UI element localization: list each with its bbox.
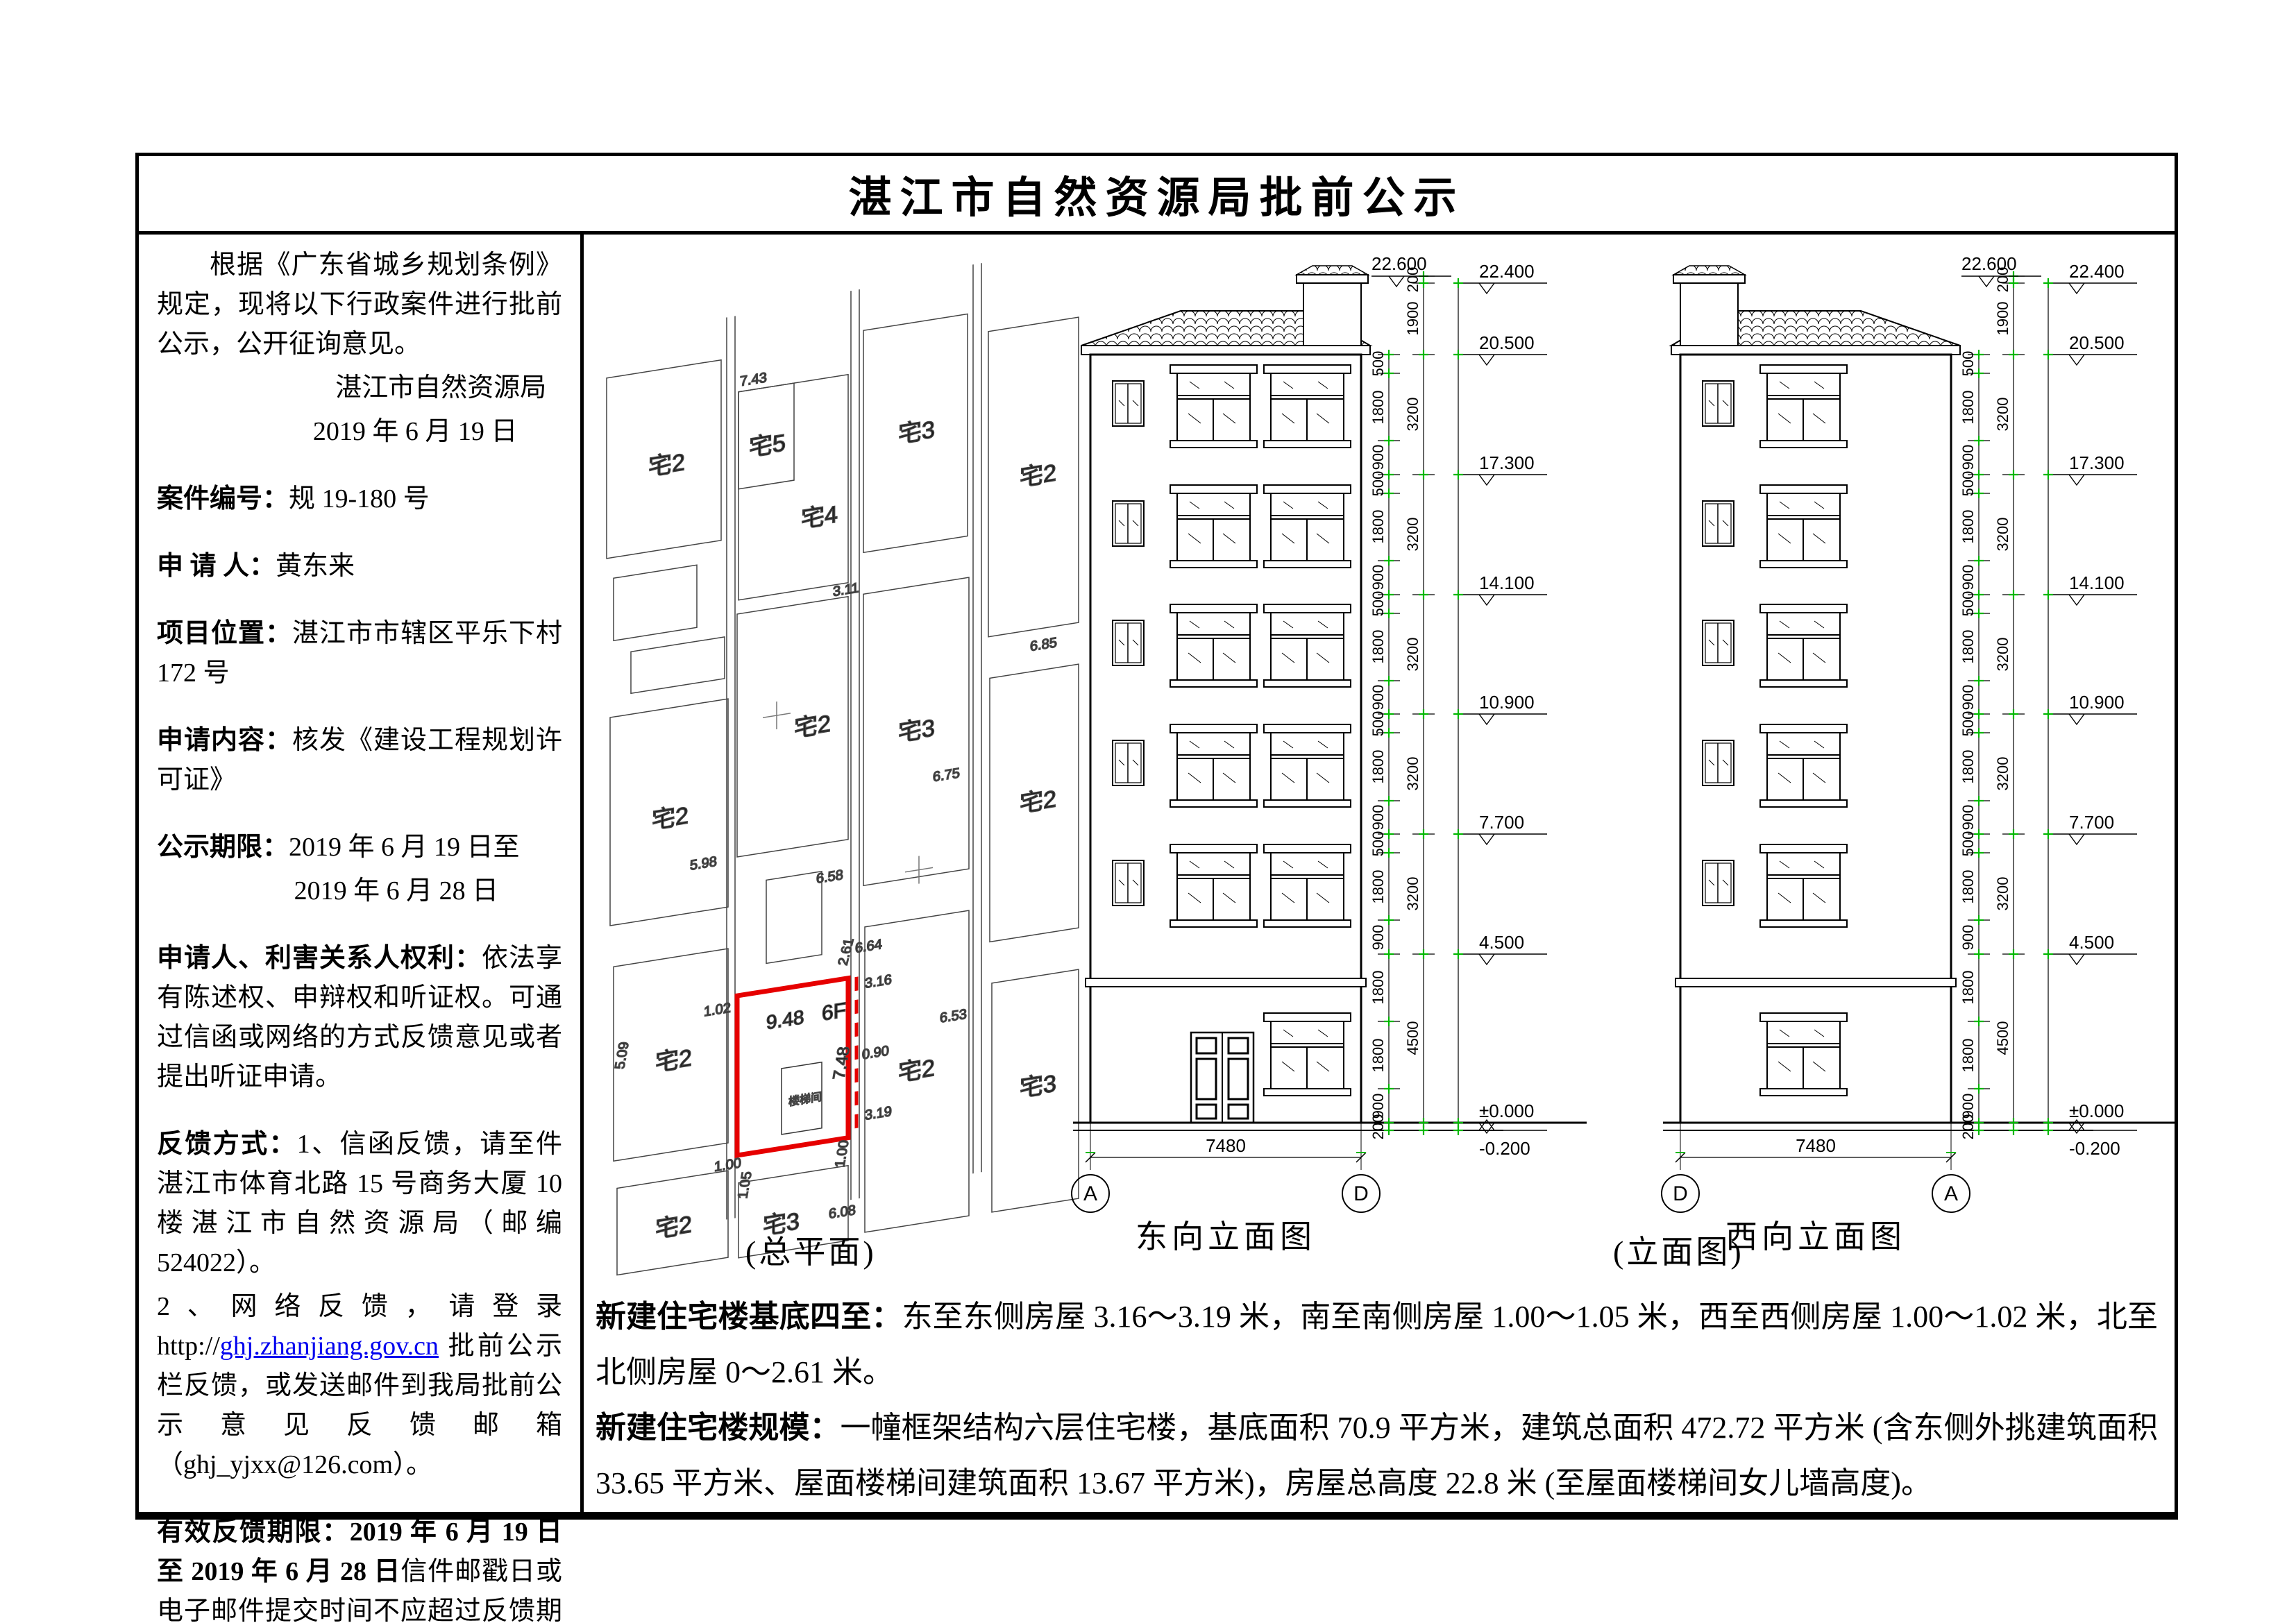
dim-text: 1800 — [1369, 630, 1387, 664]
red-subject-plot: 9.48 6F 楼梯间 7.48 — [737, 977, 856, 1155]
dim-text: 3200 — [1994, 638, 2011, 672]
field-period: 公示期限：2019 年 6 月 19 日至 — [157, 828, 562, 867]
elevations-caption: (立面图) — [1613, 1227, 1744, 1273]
rights-paragraph: 申请人、利害关系人权利：依法享有陈述权、申辩权和听证权。可通过信函或网络的方式反… — [157, 939, 562, 1097]
field-content: 申请内容：核发《建设工程规划许可证》 — [157, 721, 562, 800]
dim-text: 3200 — [1404, 757, 1421, 791]
east-elevation-drawing: 500 1800 900 500 1800 900 500 1800 900 5… — [1073, 255, 1601, 1296]
parcel-label: 宅2 — [652, 802, 689, 834]
dim-text: 3200 — [1994, 518, 2011, 552]
level-markers: 22.600 22.400 20.500 17.300 14.100 10.90… — [1961, 253, 2137, 1159]
dim-label: 1.00 — [832, 1140, 852, 1168]
level-text: 22.600 — [1961, 253, 2017, 274]
axis-letter: A — [1083, 1182, 1097, 1205]
dim-text: 900 — [1959, 805, 1977, 831]
dim-text: 900 — [1959, 445, 1977, 470]
survey-cross-icon — [905, 853, 933, 885]
window-large — [1760, 485, 1847, 568]
dim-text: 500 — [1959, 471, 1977, 497]
level-text: 17.300 — [2069, 452, 2125, 473]
stair-penthouse — [1680, 283, 1738, 346]
dim-text: 200 — [1959, 1114, 1977, 1140]
note-boundaries: 新建住宅楼基底四至：东至东侧房屋 3.16～3.19 米，南至南侧房屋 1.00… — [596, 1289, 2158, 1400]
site-plan-drawing: 宅2 宅2 宅2 宅2 宅5 宅4 宅2 — [593, 262, 1086, 1234]
dim-label: 5.98 — [690, 854, 717, 874]
elevation-title: 西向立面图 — [1725, 1219, 1906, 1255]
dim-text: 1800 — [1369, 1039, 1387, 1073]
dim-text: 1900 — [1404, 302, 1421, 336]
dim-label: 6.58 — [816, 867, 843, 887]
dim-text: 500 — [1369, 831, 1387, 857]
parcel-label: 宅3 — [898, 715, 935, 747]
eave-band — [1671, 346, 1960, 355]
dim-text: 1800 — [1959, 971, 1977, 1005]
penthouse-roof — [1297, 266, 1368, 275]
dim-text: 900 — [1369, 685, 1387, 711]
penthouse-eave — [1297, 275, 1368, 283]
dim-label: 3.16 — [865, 972, 892, 992]
dim-text: 500 — [1369, 711, 1387, 737]
parcel-label: 宅4 — [801, 501, 838, 533]
dim-text: 1800 — [1959, 391, 1977, 425]
entrance-door — [1191, 1033, 1253, 1123]
dim-text: 1800 — [1369, 510, 1387, 544]
red-plot-floors-label: 6F — [822, 999, 846, 1025]
intro-paragraph: 根据《广东省城乡规划条例》规定，现将以下行政案件进行批前公示，公开征询意见。 — [157, 246, 562, 364]
dim-text: 3200 — [1404, 877, 1421, 911]
window-large — [1760, 604, 1847, 687]
dim-label: 5.09 — [612, 1042, 632, 1069]
field-case-number: 案件编号：规 19-180 号 — [157, 479, 562, 519]
dim-text: 1800 — [1959, 630, 1977, 664]
dim-text: 1800 — [1959, 510, 1977, 544]
dimension-chain-outer: 200 1900 3200 3200 3200 3200 3200 4500 — [1404, 267, 1435, 1135]
window-small — [1113, 860, 1144, 906]
window-large — [1170, 844, 1257, 927]
dim-label: 2.61 — [836, 937, 857, 966]
level-text: -0.200 — [1479, 1138, 1530, 1159]
level-text: 22.400 — [1479, 261, 1535, 282]
span-dim: 7480 — [1796, 1135, 1836, 1156]
dim-text: 1900 — [1994, 302, 2011, 336]
dim-label: 1.00 — [714, 1155, 741, 1175]
parcel — [738, 375, 848, 600]
parcel-label: 宅2 — [655, 1045, 692, 1077]
span-dim: 7480 — [1206, 1135, 1246, 1156]
belt-course — [1086, 978, 1366, 987]
dim-text: 1800 — [1369, 750, 1387, 784]
dimension-chain-inner: 500 1800 900 500 1800 900 500 1800 900 5… — [1959, 350, 1990, 1139]
dim-text: 3200 — [1994, 757, 2011, 791]
page-title: 湛江市自然资源局批前公示 — [848, 162, 1464, 225]
dim-text: 900 — [1369, 925, 1387, 951]
level-text: 10.900 — [2069, 692, 2125, 713]
parcel-label: 宅2 — [794, 711, 831, 742]
dim-label: 1.05 — [735, 1171, 754, 1199]
dim-text: 4500 — [1404, 1021, 1421, 1055]
window-small — [1113, 620, 1144, 665]
level-text: 4.500 — [2069, 932, 2114, 953]
window-large — [1760, 365, 1847, 448]
outbuilding — [766, 872, 822, 964]
dim-label: 7.43 — [740, 370, 767, 389]
dim-text: 3200 — [1404, 398, 1421, 432]
dim-label: 3.11 — [833, 580, 859, 600]
window-small — [1703, 620, 1734, 665]
site-plan-caption: (总平面) — [745, 1227, 877, 1273]
dim-label: 6.53 — [940, 1007, 967, 1026]
dim-text: 1800 — [1369, 391, 1387, 425]
dim-text: 500 — [1959, 351, 1977, 377]
parcel-label: 宅2 — [1020, 459, 1056, 491]
dim-text: 4500 — [1994, 1021, 2011, 1055]
parcel-label: 宅2 — [898, 1055, 935, 1087]
dim-text: 1800 — [1369, 971, 1387, 1005]
window-small — [1113, 381, 1144, 426]
window-small — [1703, 860, 1734, 906]
window-large — [1264, 844, 1351, 927]
feedback-url-link[interactable]: ghj.zhanjiang.gov.cn — [220, 1332, 439, 1361]
parcel — [737, 597, 848, 857]
outbuilding — [614, 565, 697, 640]
dim-text: 900 — [1959, 925, 1977, 951]
dim-text: 900 — [1369, 445, 1387, 470]
dim-text: 900 — [1959, 565, 1977, 590]
axis-letter: D — [1673, 1182, 1688, 1205]
dim-text: 900 — [1369, 565, 1387, 590]
level-text: ±0.000 — [2069, 1101, 2124, 1121]
eave-band — [1081, 346, 1370, 355]
parcel-label: 宅5 — [749, 430, 786, 461]
level-text: 20.500 — [2069, 332, 2125, 353]
notice-sidebar: 根据《广东省城乡规划条例》规定，现将以下行政案件进行批前公示，公开征询意见。 湛… — [139, 235, 584, 1512]
dim-text: 3200 — [1404, 518, 1421, 552]
survey-cross-icon — [763, 699, 791, 731]
dim-text: 200 — [1369, 1114, 1387, 1140]
dim-text: 1800 — [1369, 870, 1387, 904]
drawing-area: 宅2 宅2 宅2 宅2 宅5 宅4 宅2 — [587, 235, 2175, 1512]
elevation-title: 东向立面图 — [1136, 1219, 1316, 1255]
dim-label: 3.19 — [865, 1104, 892, 1123]
dim-text: 3200 — [1404, 638, 1421, 672]
feedback-paragraph-1: 反馈方式：1、信函反馈，请至件湛江市体育北路 15 号商务大厦 10 楼湛江市自… — [157, 1125, 562, 1283]
field-applicant: 申 请 人：黄东来 — [157, 547, 562, 586]
dim-label: 0.90 — [862, 1043, 889, 1062]
level-markers: 22.600 22.400 20.500 17.300 14.100 10.90… — [1371, 253, 1547, 1159]
window-small — [1703, 501, 1734, 546]
window-large — [1264, 724, 1351, 807]
window-large — [1264, 1013, 1351, 1096]
field-period-line2: 2019 年 6 月 28 日 — [157, 872, 562, 911]
dim-label: 6.08 — [829, 1203, 856, 1222]
dim-text: 500 — [1369, 471, 1387, 497]
level-text: 10.900 — [1479, 692, 1535, 713]
title-bar: 湛江市自然资源局批前公示 — [139, 156, 2175, 235]
parcel-label: 宅2 — [648, 449, 685, 481]
dim-text: 500 — [1959, 831, 1977, 857]
agency-date: 2019 年 6 月 19 日 — [157, 412, 562, 452]
dim-text: 3200 — [1994, 398, 2011, 432]
window-large — [1760, 844, 1847, 927]
level-text: 7.700 — [1479, 812, 1524, 833]
dimension-chain-inner: 500 1800 900 500 1800 900 500 1800 900 5… — [1369, 350, 1400, 1139]
axis-letter: D — [1353, 1182, 1369, 1205]
document-frame: 湛江市自然资源局批前公示 根据《广东省城乡规划条例》规定，现将以下行政案件进行批… — [135, 153, 2178, 1520]
window-small — [1113, 501, 1144, 546]
window-small — [1703, 381, 1734, 426]
dim-text: 1800 — [1959, 1039, 1977, 1073]
level-text: 14.100 — [2069, 572, 2125, 593]
window-small — [1113, 740, 1144, 785]
stair-label: 楼梯间 — [788, 1091, 822, 1108]
parcel-label: 宅3 — [1020, 1070, 1056, 1102]
axis-and-title: 7480 A D 东向立面图 — [1072, 1123, 1380, 1255]
note-scale: 新建住宅楼规模：一幢框架结构六层住宅楼，基底面积 70.9 平方米，建筑总面积 … — [596, 1400, 2158, 1511]
window-large — [1760, 724, 1847, 807]
level-text: 22.600 — [1371, 253, 1427, 274]
window-large — [1170, 365, 1257, 448]
window-large — [1170, 724, 1257, 807]
dim-text: 500 — [1369, 591, 1387, 617]
level-text: ±0.000 — [1479, 1101, 1534, 1121]
dim-text: 1800 — [1959, 750, 1977, 784]
window-large — [1264, 485, 1351, 568]
agency-name: 湛江市自然资源局 — [157, 368, 562, 408]
outbuilding — [631, 637, 725, 693]
red-plot-width-label: 9.48 — [766, 1005, 804, 1033]
dim-text: 500 — [1959, 591, 1977, 617]
dim-text: 900 — [1369, 805, 1387, 831]
dim-text: 500 — [1369, 351, 1387, 377]
window-large — [1264, 365, 1351, 448]
belt-course — [1675, 978, 1956, 987]
valid-period-paragraph: 有效反馈期限：2019 年 6 月 19 日至 2019 年 6 月 28 日信… — [157, 1513, 562, 1623]
parcel-label: 宅3 — [898, 416, 935, 448]
penthouse-roof — [1673, 266, 1745, 275]
window-small — [1703, 740, 1734, 785]
field-location: 项目位置：湛江市市辖区平乐下村 172 号 — [157, 614, 562, 693]
level-text: 22.400 — [2069, 261, 2125, 282]
level-text: 20.500 — [1479, 332, 1535, 353]
axis-letter: A — [1944, 1182, 1958, 1205]
dim-text: 3200 — [1994, 877, 2011, 911]
dim-text: 1800 — [1959, 870, 1977, 904]
level-text: 7.700 — [2069, 812, 2114, 833]
parcel-label: 宅2 — [655, 1212, 692, 1243]
level-text: 17.300 — [1479, 452, 1535, 473]
notice-page: 湛江市自然资源局批前公示 根据《广东省城乡规划条例》规定，现将以下行政案件进行批… — [0, 0, 2296, 1623]
window-large — [1170, 485, 1257, 568]
parcel-label: 宅2 — [1020, 785, 1056, 817]
dim-label: 6.85 — [1030, 635, 1057, 654]
dim-label: 6.75 — [933, 765, 960, 785]
dim-text: 500 — [1959, 711, 1977, 737]
feedback-paragraph-2: 2、网络反馈，请登录 http://ghj.zhanjiang.gov.cn 批… — [157, 1287, 562, 1485]
level-text: -0.200 — [2069, 1138, 2120, 1159]
dimension-chain-outer: 200 1900 3200 3200 3200 3200 3200 4500 — [1994, 267, 2025, 1135]
window-large — [1760, 1013, 1847, 1096]
window-large — [1264, 604, 1351, 687]
window-large — [1170, 604, 1257, 687]
level-text: 14.100 — [1479, 572, 1535, 593]
dim-text: 900 — [1959, 685, 1977, 711]
stair-penthouse — [1303, 283, 1361, 346]
penthouse-eave — [1673, 275, 1745, 283]
level-text: 4.500 — [1479, 932, 1524, 953]
west-elevation-drawing: 500 1800 900 500 1800 900 500 1800 900 5… — [1663, 255, 2191, 1296]
project-notes: 新建住宅楼基底四至：东至东侧房屋 3.16～3.19 米，南至南侧房屋 1.00… — [596, 1289, 2158, 1511]
